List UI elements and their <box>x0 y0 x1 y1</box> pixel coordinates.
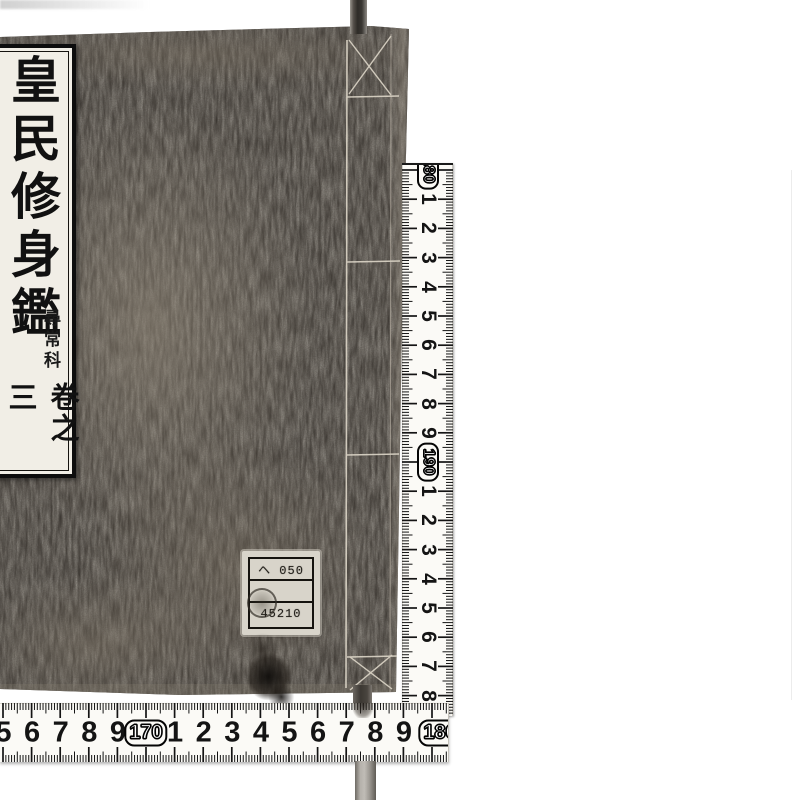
vertical-ruler-decade-180: 180 <box>417 163 439 189</box>
horizontal-ruler-number-5: 5 <box>0 716 11 749</box>
binding-cord-segment <box>353 685 372 704</box>
scan-smudge <box>0 0 150 9</box>
horizontal-ruler-decade-170: 170 <box>124 719 167 746</box>
horizontal-ruler: 56789170123456789180 <box>0 703 449 762</box>
vertical-ruler-number-4: 4 <box>416 281 440 293</box>
vertical-ruler-decade-190: 190 <box>417 443 439 482</box>
binding-cord-bottom <box>355 761 376 800</box>
title-label: 皇民修身鑑 尋常科 卷之三 <box>0 44 76 478</box>
vertical-ruler-number-8: 8 <box>416 398 440 410</box>
vertical-ruler-number-1: 1 <box>416 485 440 497</box>
horizontal-ruler-decade-180: 180 <box>418 719 449 746</box>
horizontal-ruler-number-5: 5 <box>281 716 296 749</box>
vertical-ruler-number-1: 1 <box>416 193 440 205</box>
vertical-ruler-number-5: 5 <box>416 310 440 322</box>
ink-stain <box>240 622 315 710</box>
digitized-book-photo: 皇民修身鑑 尋常科 卷之三 ヘ 050 45210 18012345678919… <box>0 0 800 800</box>
scan-faint-line <box>791 170 792 700</box>
horizontal-ruler-number-8: 8 <box>367 716 382 749</box>
vertical-ruler-number-8: 8 <box>416 690 440 702</box>
vertical-ruler-number-5: 5 <box>416 602 440 614</box>
vertical-ruler-number-3: 3 <box>416 252 440 264</box>
vertical-ruler-number-4: 4 <box>416 573 440 585</box>
horizontal-ruler-number-6: 6 <box>310 716 325 749</box>
horizontal-ruler-number-9: 9 <box>396 716 411 749</box>
horizontal-ruler-number-4: 4 <box>253 716 268 749</box>
vertical-ruler-number-2: 2 <box>416 515 440 527</box>
horizontal-ruler-number-1: 1 <box>167 716 182 749</box>
book-title: 皇民修身鑑 <box>0 54 68 344</box>
vertical-ruler-number-9: 9 <box>416 427 440 439</box>
horizontal-ruler-number-6: 6 <box>24 716 39 749</box>
vertical-ruler-number-3: 3 <box>416 544 440 556</box>
binding-cord-top <box>350 0 367 34</box>
horizontal-ruler-number-2: 2 <box>196 716 211 749</box>
vertical-ruler-number-7: 7 <box>416 661 440 673</box>
vertical-ruler-number-2: 2 <box>416 223 440 235</box>
vertical-ruler-number-6: 6 <box>416 631 440 643</box>
sticker-call-number: ヘ 050 <box>250 559 312 581</box>
vertical-ruler-number-6: 6 <box>416 339 440 351</box>
book-volume: 卷之三 <box>0 382 84 474</box>
horizontal-ruler-number-7: 7 <box>339 716 354 749</box>
horizontal-ruler-number-9: 9 <box>110 716 125 749</box>
vertical-ruler: 18012345678919012345678 <box>402 163 453 716</box>
horizontal-ruler-number-8: 8 <box>81 716 96 749</box>
horizontal-ruler-number-3: 3 <box>224 716 239 749</box>
book-course: 尋常科 <box>38 309 63 372</box>
horizontal-ruler-number-7: 7 <box>53 716 68 749</box>
cord-shadow-on-ruler <box>353 703 373 718</box>
round-stamp <box>247 588 277 618</box>
vertical-ruler-number-7: 7 <box>416 369 440 381</box>
